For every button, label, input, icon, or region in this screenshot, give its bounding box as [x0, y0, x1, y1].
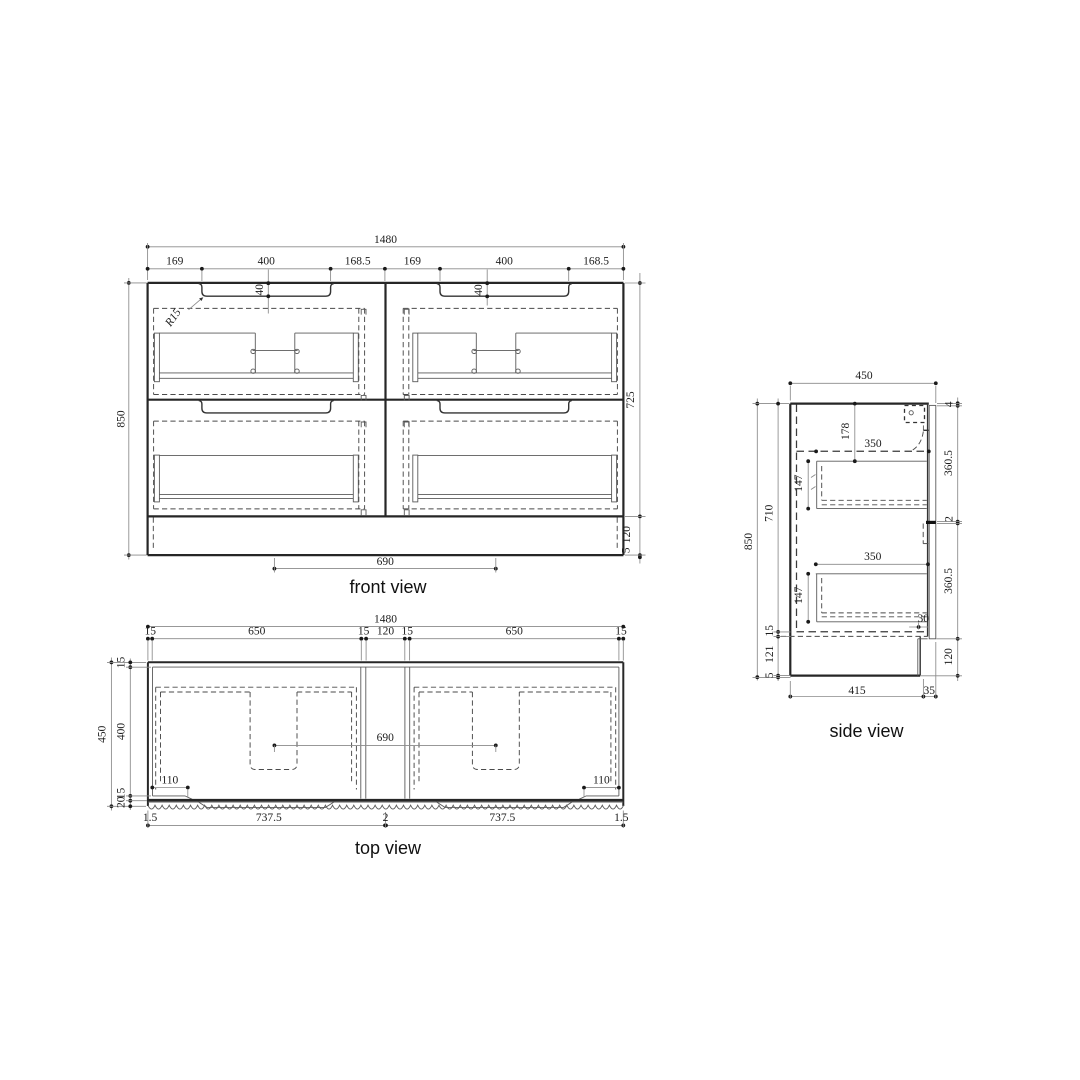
svg-text:5: 5: [764, 672, 776, 678]
svg-text:121: 121: [764, 645, 776, 663]
svg-text:15: 15: [764, 625, 776, 637]
svg-text:650: 650: [248, 626, 266, 638]
svg-text:15: 15: [615, 626, 627, 638]
svg-text:110: 110: [593, 775, 610, 787]
svg-text:120: 120: [943, 648, 955, 666]
svg-text:1.5: 1.5: [614, 812, 629, 824]
svg-text:850: 850: [743, 533, 755, 551]
svg-text:147: 147: [793, 586, 805, 604]
svg-text:710: 710: [764, 504, 776, 522]
svg-text:120: 120: [621, 526, 633, 544]
svg-text:2: 2: [943, 516, 955, 522]
svg-text:400: 400: [496, 256, 514, 268]
svg-text:650: 650: [506, 626, 524, 638]
svg-text:850: 850: [116, 410, 128, 428]
svg-text:1.5: 1.5: [143, 812, 158, 824]
svg-text:147: 147: [793, 474, 805, 492]
svg-text:350: 350: [864, 438, 882, 450]
svg-text:737.5: 737.5: [489, 812, 515, 824]
svg-text:15: 15: [402, 626, 414, 638]
svg-text:415: 415: [848, 685, 866, 697]
svg-text:2: 2: [383, 812, 389, 824]
svg-text:top view: top view: [355, 838, 422, 858]
svg-text:30: 30: [917, 613, 929, 625]
svg-text:690: 690: [377, 556, 395, 568]
svg-text:40: 40: [473, 284, 485, 296]
svg-text:110: 110: [161, 775, 178, 787]
svg-text:360.5: 360.5: [943, 450, 955, 476]
svg-text:168.5: 168.5: [345, 256, 371, 268]
svg-text:690: 690: [377, 732, 395, 744]
svg-text:178: 178: [840, 423, 852, 441]
svg-text:35: 35: [924, 685, 936, 697]
svg-text:40: 40: [254, 284, 266, 296]
svg-text:400: 400: [116, 723, 128, 741]
svg-text:side view: side view: [829, 721, 904, 741]
svg-text:400: 400: [258, 256, 276, 268]
svg-text:4: 4: [943, 401, 955, 407]
svg-text:1480: 1480: [374, 234, 397, 246]
svg-text:R15: R15: [163, 307, 184, 330]
svg-text:360.5: 360.5: [943, 568, 955, 594]
svg-text:5: 5: [621, 547, 633, 553]
svg-text:725: 725: [625, 391, 637, 409]
svg-text:1480: 1480: [374, 613, 397, 625]
svg-text:450: 450: [855, 370, 873, 382]
svg-text:168.5: 168.5: [583, 256, 609, 268]
svg-text:169: 169: [166, 256, 184, 268]
svg-text:169: 169: [404, 256, 422, 268]
svg-text:450: 450: [97, 725, 109, 743]
svg-text:front view: front view: [349, 577, 427, 597]
svg-text:15: 15: [145, 626, 157, 638]
svg-text:15: 15: [116, 657, 128, 669]
svg-text:350: 350: [864, 551, 882, 563]
svg-text:737.5: 737.5: [256, 812, 282, 824]
svg-text:15: 15: [358, 626, 370, 638]
svg-text:120: 120: [377, 626, 395, 638]
svg-text:20: 20: [116, 796, 128, 808]
